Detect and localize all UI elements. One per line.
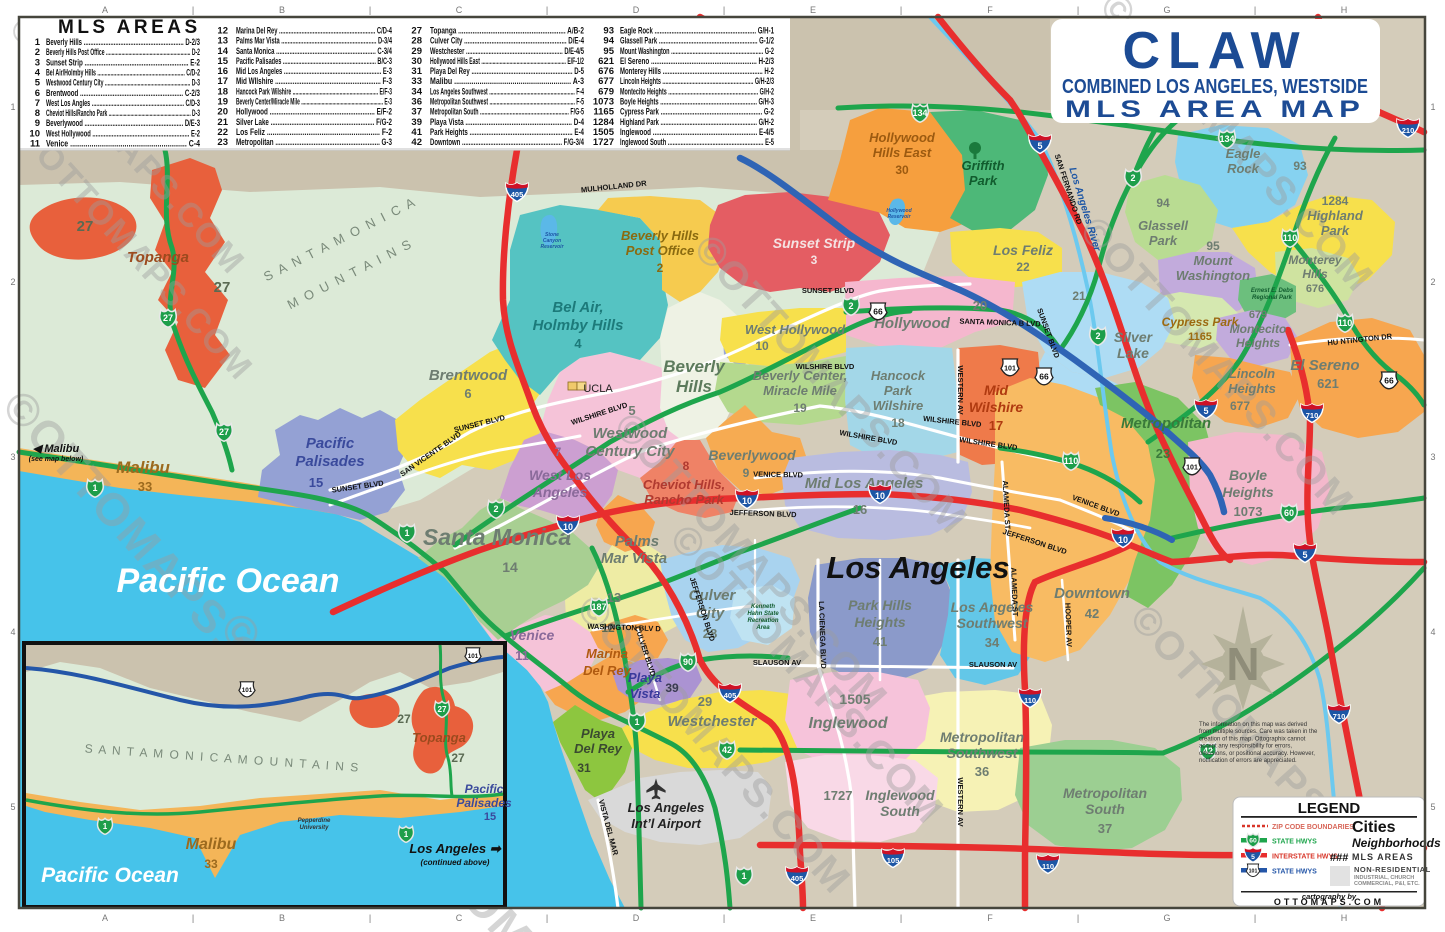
svg-text:Hills East: Hills East <box>873 145 932 160</box>
svg-text:A: A <box>102 5 108 15</box>
svg-text:2: 2 <box>493 504 498 514</box>
svg-text:|: | <box>1077 5 1079 15</box>
svg-text:Southwest: Southwest <box>947 745 1019 761</box>
svg-text:Monterey: Monterey <box>1288 253 1343 267</box>
svg-text:B: B <box>279 5 285 15</box>
svg-text:1: 1 <box>741 871 746 881</box>
svg-text:11: 11 <box>515 648 529 663</box>
svg-text:621: 621 <box>1317 376 1339 391</box>
svg-text:1165: 1165 <box>1188 331 1212 343</box>
svg-text:676: 676 <box>1306 283 1324 295</box>
svg-text:3: 3 <box>1430 452 1435 462</box>
svg-text:University: University <box>299 825 329 831</box>
svg-text:E: E <box>810 913 816 923</box>
svg-text:Mar Vista: Mar Vista <box>601 550 667 567</box>
svg-text:101: 101 <box>1249 869 1258 875</box>
svg-text:Rock: Rock <box>1227 161 1260 176</box>
svg-text:5: 5 <box>1037 141 1042 151</box>
svg-text:West Los: West Los <box>529 467 591 483</box>
svg-text:Highland: Highland <box>1307 208 1364 223</box>
svg-text:Brentwood: Brentwood <box>429 367 508 384</box>
svg-text:110: 110 <box>1338 318 1353 328</box>
svg-text:134: 134 <box>1219 134 1234 144</box>
svg-text:Inglewood: Inglewood <box>808 715 888 732</box>
svg-text:Hills: Hills <box>1302 267 1328 281</box>
svg-text:Kenneth: Kenneth <box>751 604 775 610</box>
svg-text:Neighborhoods: Neighborhoods <box>1352 836 1441 850</box>
svg-text:101: 101 <box>1186 464 1198 471</box>
svg-text:2: 2 <box>1430 277 1435 287</box>
svg-text:679: 679 <box>1249 309 1267 321</box>
svg-text:Hills: Hills <box>676 377 712 396</box>
svg-text:F: F <box>987 5 993 15</box>
svg-text:Playa: Playa <box>581 726 615 741</box>
svg-text:110: 110 <box>1024 696 1036 705</box>
svg-text:El Sereno: El Sereno <box>1290 357 1359 374</box>
svg-text:MLS AREAS: MLS AREAS <box>1352 852 1414 862</box>
svg-text:Park: Park <box>1321 223 1350 238</box>
svg-text:|: | <box>369 913 371 923</box>
svg-text:Los Angeles: Los Angeles <box>826 550 1009 585</box>
svg-text:405: 405 <box>724 691 737 700</box>
svg-text:Heights: Heights <box>1228 381 1276 396</box>
svg-text:|: | <box>369 5 371 15</box>
svg-text:Metropolitan: Metropolitan <box>940 729 1024 745</box>
svg-text:1284: 1284 <box>1322 194 1349 208</box>
svg-text:Marina: Marina <box>586 646 628 661</box>
svg-text:27: 27 <box>214 279 231 296</box>
svg-text:Metropolitan: Metropolitan <box>1063 785 1147 801</box>
svg-text:Park: Park <box>884 383 913 398</box>
svg-text:1: 1 <box>103 822 108 831</box>
svg-text:1: 1 <box>404 528 409 538</box>
svg-text:187: 187 <box>591 602 606 612</box>
svg-text:Angeles: Angeles <box>532 484 588 500</box>
svg-text:STATE HWYS: STATE HWYS <box>1272 869 1317 876</box>
svg-text:Post Office: Post Office <box>626 243 694 258</box>
svg-text:101: 101 <box>468 653 479 660</box>
svg-text:Miracle Mile: Miracle Mile <box>763 383 837 398</box>
svg-text:MLS AREA MAP: MLS AREA MAP <box>1065 96 1365 123</box>
svg-text:10: 10 <box>563 522 573 532</box>
svg-text:23: 23 <box>217 137 228 148</box>
svg-text:D: D <box>633 913 640 923</box>
svg-text:Westwood: Westwood <box>593 425 669 442</box>
svg-text:LEGEND: LEGEND <box>1298 800 1361 817</box>
svg-text:Wilshire: Wilshire <box>969 399 1024 415</box>
svg-text:|: | <box>723 5 725 15</box>
svg-text:110: 110 <box>1283 233 1298 243</box>
svg-text:66: 66 <box>1039 371 1049 381</box>
svg-text:30: 30 <box>895 163 909 177</box>
svg-text:60: 60 <box>1284 508 1294 518</box>
svg-text:G: G <box>1163 913 1170 923</box>
svg-text:Topanga: Topanga <box>412 730 466 745</box>
svg-text:93: 93 <box>1293 159 1307 173</box>
svg-text:INTERSTATE HWYS: INTERSTATE HWYS <box>1272 854 1338 861</box>
svg-text:1727: 1727 <box>593 137 614 148</box>
svg-text:Venice: Venice <box>510 627 555 643</box>
svg-text:Eagle: Eagle <box>1226 146 1261 161</box>
svg-text:4: 4 <box>10 627 15 637</box>
svg-text:10: 10 <box>875 491 885 501</box>
svg-text:110: 110 <box>1064 456 1079 466</box>
svg-text:Los Angeles: Los Angeles <box>628 800 705 815</box>
svg-text:27: 27 <box>219 427 229 437</box>
svg-text:Inglewood: Inglewood <box>865 787 935 803</box>
svg-text:(continued above): (continued above) <box>421 858 490 867</box>
svg-text:11: 11 <box>30 139 41 150</box>
svg-text:5: 5 <box>10 802 15 812</box>
svg-text:Vista: Vista <box>630 686 661 701</box>
svg-text:27: 27 <box>451 751 465 765</box>
svg-text:66: 66 <box>1384 375 1394 385</box>
svg-text:A: A <box>102 913 108 923</box>
svg-text:ALAMEDA ST: ALAMEDA ST <box>1009 567 1020 617</box>
svg-text:SLAUSON AV: SLAUSON AV <box>969 660 1017 669</box>
svg-text:10: 10 <box>742 496 752 506</box>
svg-text:Glassell: Glassell <box>1138 218 1188 233</box>
svg-text:Cheviot Hills,: Cheviot Hills, <box>643 477 725 492</box>
svg-text:UCLA: UCLA <box>583 383 613 395</box>
svg-text:COMMERCIAL, P&I, ETC.: COMMERCIAL, P&I, ETC. <box>1354 881 1420 887</box>
svg-text:Pacific: Pacific <box>465 782 504 796</box>
svg-text:94: 94 <box>1156 196 1170 210</box>
svg-text:15: 15 <box>484 811 496 823</box>
svg-text:Southwest: Southwest <box>957 615 1029 631</box>
svg-text:Lake: Lake <box>1117 345 1149 361</box>
svg-text:|: | <box>1254 5 1256 15</box>
svg-text:1505: 1505 <box>839 691 870 707</box>
svg-text:Heights: Heights <box>854 614 906 630</box>
svg-text:South: South <box>880 803 920 819</box>
svg-text:H: H <box>1341 913 1348 923</box>
svg-text:Beverlywood: Beverlywood <box>708 447 796 463</box>
svg-text:Westchester: Westchester <box>668 713 758 730</box>
svg-text:5: 5 <box>1430 802 1435 812</box>
svg-text:29: 29 <box>698 694 712 709</box>
svg-text:710: 710 <box>1333 712 1346 721</box>
svg-text:Park: Park <box>1149 233 1178 248</box>
svg-text:from multiple sources. Care wa: from multiple sources. Care was taken in… <box>1199 729 1318 735</box>
svg-text:Park Hills: Park Hills <box>848 597 912 613</box>
svg-text:2: 2 <box>1130 173 1135 183</box>
svg-text:23: 23 <box>1156 446 1170 461</box>
svg-text:Beverly: Beverly <box>663 357 726 376</box>
svg-text:Heights: Heights <box>1222 484 1274 500</box>
svg-text:4: 4 <box>1430 627 1435 637</box>
svg-text:Pacific Ocean: Pacific Ocean <box>41 864 179 887</box>
svg-text:|: | <box>192 913 194 923</box>
svg-text:3: 3 <box>10 452 15 462</box>
svg-text:15: 15 <box>309 475 323 490</box>
svg-text:21: 21 <box>1072 289 1086 303</box>
svg-text:34: 34 <box>985 635 1000 650</box>
svg-text:Inglewood South ..............: Inglewood South ........................… <box>620 137 774 148</box>
svg-text:Hancock: Hancock <box>871 368 926 383</box>
svg-text:36: 36 <box>975 764 989 779</box>
svg-text:13: 13 <box>607 590 621 605</box>
svg-text:|: | <box>1254 913 1256 923</box>
svg-text:WESTERN AV: WESTERN AV <box>956 365 965 414</box>
svg-text:101: 101 <box>242 687 253 694</box>
svg-text:B: B <box>279 913 285 923</box>
svg-text:Los Angeles ➡: Los Angeles ➡ <box>409 841 501 856</box>
svg-text:33: 33 <box>138 479 152 494</box>
svg-text:20: 20 <box>973 298 987 313</box>
svg-text:Reservoir: Reservoir <box>540 244 564 250</box>
svg-text:Cities: Cities <box>1352 819 1396 836</box>
svg-text:Metropolitan: Metropolitan <box>1121 415 1211 432</box>
svg-text:Silver: Silver <box>1114 329 1154 345</box>
svg-text:710: 710 <box>1306 411 1319 420</box>
svg-text:1727: 1727 <box>824 788 853 803</box>
svg-text:HOOPER AV: HOOPER AV <box>1063 603 1074 647</box>
svg-text:omissions, or positional accur: omissions, or positional accuracy. Howev… <box>1199 751 1315 757</box>
svg-text:Area: Area <box>755 625 770 631</box>
svg-text:Mid: Mid <box>984 382 1009 398</box>
svg-text:Downtown: Downtown <box>1054 585 1130 602</box>
svg-text:27: 27 <box>437 705 447 714</box>
svg-text:C: C <box>456 5 463 15</box>
svg-text:1: 1 <box>404 830 409 839</box>
svg-text:Boyle: Boyle <box>1229 467 1267 483</box>
svg-text:Downtown .....................: Downtown ...............................… <box>430 137 584 148</box>
svg-text:Malibu: Malibu <box>186 836 237 853</box>
svg-text:Holmby Hills: Holmby Hills <box>533 317 624 334</box>
svg-text:Malibu: Malibu <box>116 458 170 477</box>
svg-text:17: 17 <box>989 418 1003 433</box>
svg-text:105: 105 <box>887 856 900 865</box>
svg-text:ZIP CODE BOUNDARIES: ZIP CODE BOUNDARIES <box>1272 824 1354 831</box>
svg-text:creation of this map. Ottograp: creation of this map. Ottographix cannot <box>1199 736 1306 742</box>
svg-text:2: 2 <box>848 301 853 311</box>
svg-text:Del Rey: Del Rey <box>574 741 622 756</box>
svg-text:2: 2 <box>657 261 664 275</box>
svg-text:NON-RESIDENTIAL: NON-RESIDENTIAL <box>1354 865 1431 874</box>
svg-text:MLS AREAS: MLS AREAS <box>58 17 201 38</box>
svg-text:Cypress Park: Cypress Park <box>1162 315 1240 329</box>
svg-text:134: 134 <box>912 108 927 118</box>
svg-text:42: 42 <box>1085 606 1099 621</box>
svg-text:VENICE BLVD: VENICE BLVD <box>753 470 804 480</box>
svg-text:31: 31 <box>577 761 591 775</box>
svg-text:2: 2 <box>10 277 15 287</box>
svg-text:Ernest E. Debs: Ernest E. Debs <box>1251 288 1294 294</box>
svg-text:16: 16 <box>853 502 867 517</box>
svg-text:Hahn State: Hahn State <box>747 611 779 617</box>
svg-text:|: | <box>900 913 902 923</box>
svg-text:6: 6 <box>464 386 471 401</box>
svg-text:Mount: Mount <box>1194 253 1234 268</box>
svg-text:Int’l Airport: Int’l Airport <box>631 816 701 831</box>
svg-text:66: 66 <box>873 306 883 316</box>
svg-text:Palisades: Palisades <box>295 453 364 470</box>
svg-text:39: 39 <box>665 681 679 695</box>
svg-text:Reservoir: Reservoir <box>887 214 911 220</box>
svg-text:Mid Los Angeles: Mid Los Angeles <box>805 475 924 492</box>
svg-text:5: 5 <box>1203 406 1208 416</box>
svg-text:South: South <box>1085 801 1125 817</box>
svg-text:|: | <box>546 913 548 923</box>
svg-text:WESTERN AV: WESTERN AV <box>956 777 965 826</box>
svg-text:STATE HWYS: STATE HWYS <box>1272 839 1317 846</box>
svg-text:|: | <box>900 5 902 15</box>
svg-text:27: 27 <box>397 712 411 726</box>
svg-text:405: 405 <box>791 874 804 883</box>
svg-text:H: H <box>1341 5 1348 15</box>
svg-text:37: 37 <box>1098 821 1112 836</box>
svg-text:405: 405 <box>511 190 524 199</box>
svg-text:F: F <box>987 913 993 923</box>
svg-text:D: D <box>633 5 640 15</box>
svg-text:N: N <box>1226 638 1259 690</box>
svg-text:90: 90 <box>683 657 693 667</box>
svg-text:677: 677 <box>1230 399 1250 413</box>
svg-text:1: 1 <box>92 483 97 493</box>
svg-text:1: 1 <box>1430 102 1435 112</box>
svg-text:notification of errors are app: notification of errors are appreciated. <box>1199 758 1297 764</box>
svg-text:Pacific: Pacific <box>306 435 355 452</box>
svg-text:8: 8 <box>683 459 690 473</box>
svg-text:Recreation: Recreation <box>747 618 778 624</box>
svg-text:CLAW: CLAW <box>1122 22 1307 80</box>
svg-text:Santa Monica: Santa Monica <box>423 524 571 550</box>
svg-text:Topanga: Topanga <box>127 249 189 266</box>
svg-text:Regional Park: Regional Park <box>1252 295 1293 301</box>
svg-text:Montecito: Montecito <box>1230 322 1287 336</box>
svg-text:Lincoln: Lincoln <box>1229 366 1275 381</box>
svg-text:27: 27 <box>163 313 173 323</box>
svg-text:42: 42 <box>411 137 422 148</box>
svg-text:Wilshire: Wilshire <box>873 398 923 413</box>
svg-text:5: 5 <box>1251 854 1255 861</box>
svg-text:◀ Malibu: ◀ Malibu <box>33 443 80 455</box>
svg-text:Palisades: Palisades <box>456 796 512 810</box>
svg-text:210: 210 <box>1402 126 1415 135</box>
svg-text:###: ### <box>1330 852 1348 864</box>
svg-text:42: 42 <box>722 745 732 755</box>
svg-text:33: 33 <box>204 857 218 871</box>
svg-text:10: 10 <box>755 339 769 353</box>
svg-text:5: 5 <box>628 403 635 418</box>
svg-text:14: 14 <box>502 559 518 575</box>
svg-text:Heights: Heights <box>1236 336 1280 350</box>
svg-text:Hollywood: Hollywood <box>869 130 936 145</box>
svg-text:|: | <box>1077 913 1079 923</box>
svg-text:9: 9 <box>743 466 750 480</box>
svg-text:C: C <box>456 913 463 923</box>
svg-text:Los Angeles: Los Angeles <box>951 599 1034 615</box>
svg-text:COMBINED LOS ANGELES, WESTSIDE: COMBINED LOS ANGELES, WESTSIDE <box>1062 76 1368 98</box>
svg-text:3: 3 <box>811 253 818 267</box>
svg-text:2: 2 <box>1095 331 1100 341</box>
svg-text:1: 1 <box>634 717 639 727</box>
svg-text:1: 1 <box>10 102 15 112</box>
svg-text:OTTOMAPS.COM: OTTOMAPS.COM <box>1274 897 1384 907</box>
svg-text:(see map below): (see map below) <box>29 456 84 463</box>
svg-text:27: 27 <box>77 218 94 235</box>
svg-text:10: 10 <box>1118 535 1128 545</box>
svg-text:101: 101 <box>1004 365 1016 372</box>
svg-text:Pacific Ocean: Pacific Ocean <box>116 562 339 600</box>
svg-text:4: 4 <box>574 336 582 351</box>
svg-text:The information on this map wa: The information on this map was derived <box>1199 722 1307 728</box>
svg-text:Rancho Park: Rancho Park <box>644 492 724 507</box>
svg-text:|: | <box>723 913 725 923</box>
svg-text:Metropolitan .................: Metropolitan ...........................… <box>236 137 392 148</box>
svg-text:G: G <box>1163 5 1170 15</box>
svg-text:West Hollywood: West Hollywood <box>745 322 846 337</box>
svg-text:accept any responsibility f: accept any responsibility for errors, <box>1199 744 1292 750</box>
svg-text:Sunset Strip: Sunset Strip <box>773 235 856 251</box>
svg-text:110: 110 <box>1042 862 1054 871</box>
svg-text:E: E <box>810 5 816 15</box>
svg-text:19: 19 <box>793 401 807 415</box>
svg-text:Hollywood: Hollywood <box>874 315 951 332</box>
svg-text:Palms: Palms <box>615 533 659 550</box>
svg-text:Griffith: Griffith <box>961 158 1004 173</box>
svg-text:7: 7 <box>555 445 562 459</box>
svg-text:Venice .......................: Venice .................................… <box>46 139 201 150</box>
svg-text:Los Feliz: Los Feliz <box>993 242 1053 258</box>
svg-text:60: 60 <box>1249 837 1257 844</box>
svg-text:Bel Air,: Bel Air, <box>552 299 603 316</box>
svg-text:SLAUSON AV: SLAUSON AV <box>753 658 801 667</box>
svg-text:95: 95 <box>1206 239 1220 253</box>
svg-text:Park: Park <box>969 173 998 188</box>
svg-text:5: 5 <box>1302 550 1307 560</box>
svg-text:Beverly Hills: Beverly Hills <box>621 228 699 243</box>
svg-text:Century City: Century City <box>585 443 675 460</box>
svg-text:|: | <box>192 5 194 15</box>
svg-text:|: | <box>546 5 548 15</box>
svg-text:22: 22 <box>1016 260 1030 274</box>
svg-text:WILSHIRE BLVD: WILSHIRE BLVD <box>796 362 855 371</box>
svg-text:Del Rey: Del Rey <box>583 663 631 678</box>
svg-text:1073: 1073 <box>1234 504 1263 519</box>
svg-text:Pepperdine: Pepperdine <box>298 818 331 824</box>
svg-text:SUNSET BLVD: SUNSET BLVD <box>802 286 855 295</box>
svg-text:Washington: Washington <box>1176 268 1250 283</box>
svg-text:41: 41 <box>873 634 887 649</box>
svg-text:18: 18 <box>891 416 905 430</box>
